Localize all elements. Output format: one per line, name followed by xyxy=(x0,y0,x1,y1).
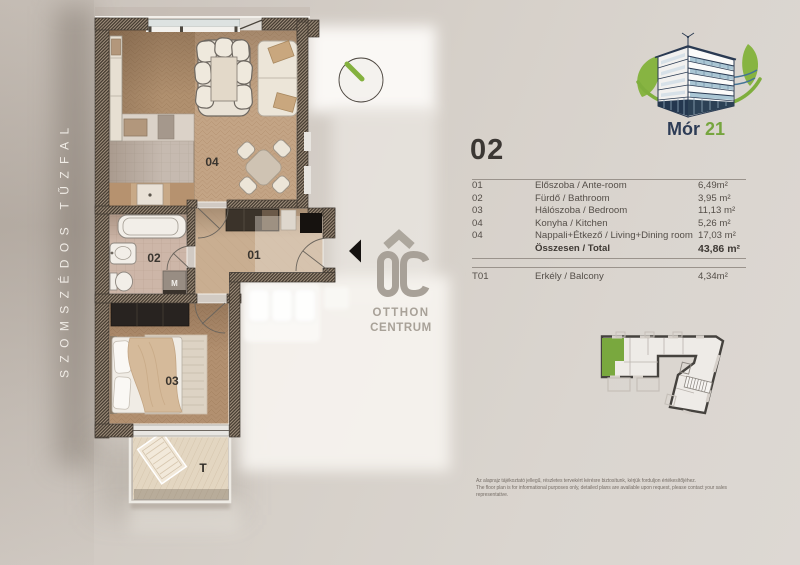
svg-text:OTTHON: OTTHON xyxy=(373,307,430,319)
svg-text:CENTRUM: CENTRUM xyxy=(370,322,432,334)
svg-text:04: 04 xyxy=(205,155,219,169)
svg-text:M: M xyxy=(171,279,178,288)
svg-text:03: 03 xyxy=(165,374,179,388)
svg-text:SZOMSZÉDOS TŰZFAL: SZOMSZÉDOS TŰZFAL xyxy=(57,120,72,378)
svg-text:01: 01 xyxy=(247,248,261,262)
svg-text:Mór 21: Mór 21 xyxy=(667,119,725,139)
svg-text:T: T xyxy=(199,461,207,475)
svg-text:02: 02 xyxy=(147,251,161,265)
